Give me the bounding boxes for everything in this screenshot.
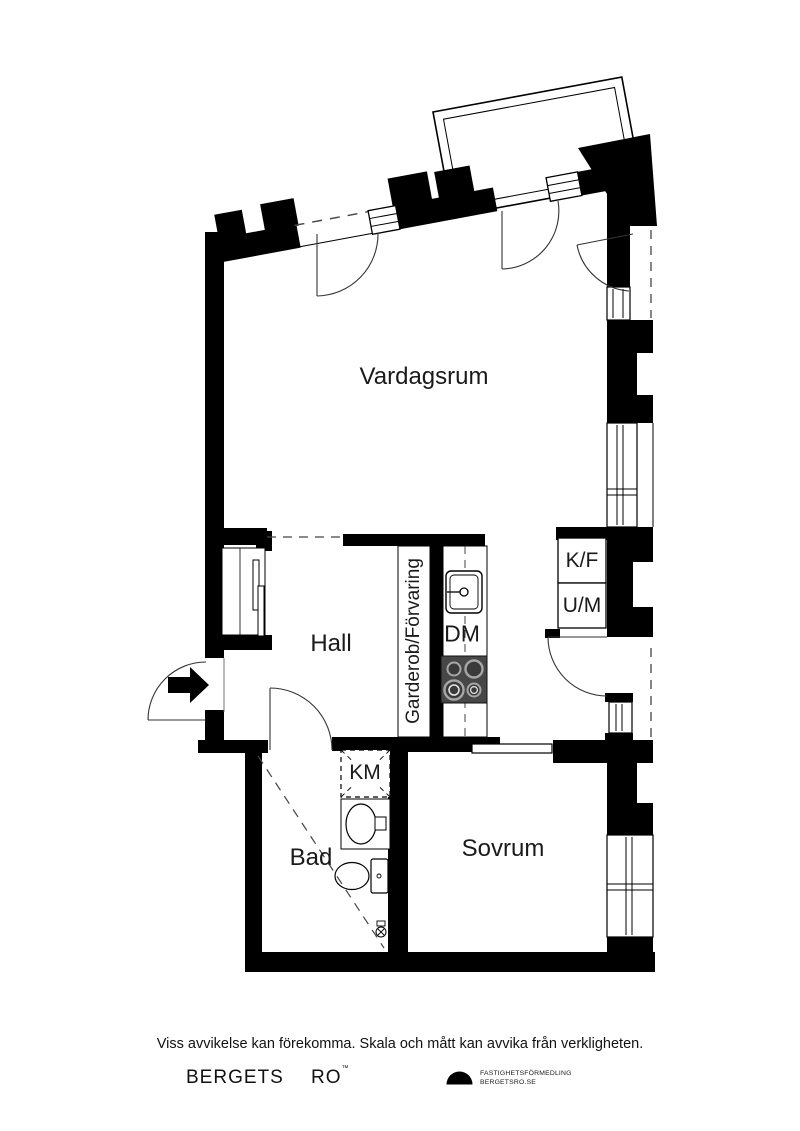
agency-logo: FASTIGHETSFÖRMEDLING BERGETSRO.SE xyxy=(446,1069,572,1087)
window-icon xyxy=(607,423,637,527)
room-label-sovrum: Sovrum xyxy=(462,835,545,863)
agency-tagline: FASTIGHETSFÖRMEDLING xyxy=(480,1070,572,1079)
wardrobe-label: Garderob/Förvaring xyxy=(403,558,425,724)
floor-plan-drawing xyxy=(0,0,800,1131)
fridge-freezer-label: K/F xyxy=(566,549,599,573)
room-label-bad: Bad xyxy=(290,844,333,872)
kitchen-sink-icon xyxy=(446,571,482,613)
trademark-icon: ™ xyxy=(342,1065,349,1072)
washbasin-icon xyxy=(341,799,390,849)
sliding-door xyxy=(472,744,552,753)
disclaimer-text: Viss avvikelse kan förekomma. Skala och … xyxy=(0,1036,800,1052)
toilet-icon xyxy=(335,859,388,893)
door-swing xyxy=(317,233,378,296)
stove-icon xyxy=(441,656,487,703)
closet xyxy=(222,548,265,636)
dishwasher-label: DM xyxy=(444,621,480,648)
door-swing xyxy=(270,688,332,750)
door-swing xyxy=(502,201,559,269)
window-icon xyxy=(607,835,653,937)
window-icon xyxy=(368,206,400,235)
opening-dashed-line xyxy=(295,211,371,225)
floor-drain-icon xyxy=(376,921,386,937)
entrance-arrow-icon xyxy=(168,667,209,703)
brand-name-second: RO™ xyxy=(311,1067,349,1089)
floor-plan-page: { "plan": { "rooms": [ {"id": "vardagsru… xyxy=(0,0,800,1131)
window-icon xyxy=(546,172,582,201)
agency-logo-text: FASTIGHETSFÖRMEDLING BERGETSRO.SE xyxy=(480,1069,572,1087)
door-swing xyxy=(548,637,607,696)
room-label-hall: Hall xyxy=(310,630,351,658)
brand-second-text: RO xyxy=(311,1067,342,1088)
semicircle-logo-icon xyxy=(446,1069,473,1085)
window-icon xyxy=(607,287,630,320)
window-icon xyxy=(609,702,632,733)
agency-url: BERGETSRO.SE xyxy=(480,1079,572,1088)
oven-microwave-label: U/M xyxy=(563,594,602,618)
room-label-vardagsrum: Vardagsrum xyxy=(360,363,489,391)
brand-name-first: BERGETS xyxy=(186,1067,284,1089)
washing-machine-label: KM xyxy=(346,761,384,785)
